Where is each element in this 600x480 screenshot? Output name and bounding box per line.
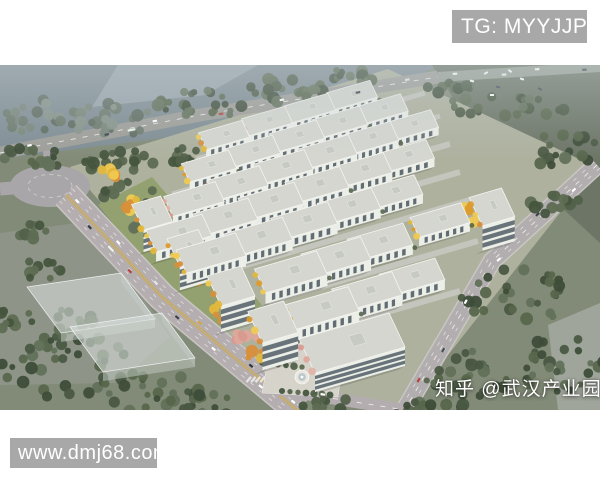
atmosphere-layer — [0, 65, 600, 160]
haze-overlay — [0, 65, 600, 160]
website-watermark: www.dmj68.com — [10, 438, 157, 468]
screenshot: 知乎 @武汉产业园 TG: MYYJJPP www.dmj68.com — [0, 0, 600, 480]
aerial-photo: 知乎 @武汉产业园 — [0, 65, 600, 410]
west-stub-road — [0, 187, 26, 189]
zhihu-watermark: 知乎 @武汉产业园 — [435, 374, 600, 401]
industrial-park-rendering — [0, 65, 600, 410]
telegram-watermark: TG: MYYJJPP — [452, 10, 587, 43]
